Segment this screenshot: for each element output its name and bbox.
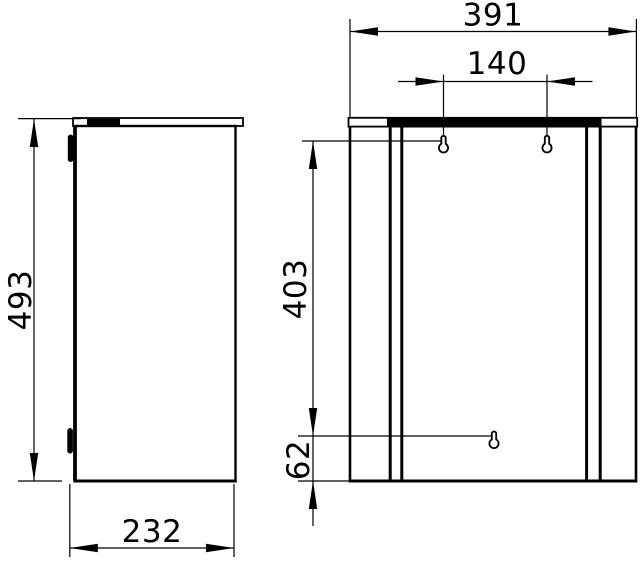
dim-height-label: 493 xyxy=(3,270,39,331)
side-view-hinge-top xyxy=(68,135,74,163)
dim-hole-spacing-label: 140 xyxy=(467,46,528,82)
arrow-right-icon xyxy=(416,77,444,85)
dim-depth: 232 xyxy=(70,484,234,557)
keyhole-top-left-icon xyxy=(439,136,448,153)
arrow-left-icon xyxy=(70,544,98,552)
arrow-down-icon xyxy=(30,453,38,481)
arrow-up-icon xyxy=(309,481,317,509)
keyhole-top-right-icon xyxy=(542,136,551,153)
dim-hole-span: 403 xyxy=(278,141,493,436)
dim-hole-span-label: 403 xyxy=(278,259,314,320)
dim-depth-label: 232 xyxy=(122,514,183,550)
arrow-right-icon xyxy=(608,27,636,35)
arrow-right-icon xyxy=(206,544,234,552)
side-view xyxy=(67,118,243,481)
arrow-up-icon xyxy=(30,119,38,147)
keyhole-bottom-icon xyxy=(489,432,498,449)
arrow-down-icon xyxy=(309,408,317,436)
front-view xyxy=(349,75,638,482)
dim-bottom-offset-label: 62 xyxy=(281,440,317,480)
front-view-lid-bar xyxy=(387,117,602,127)
dim-hole-spacing: 140 xyxy=(398,46,593,86)
arrow-left-icon xyxy=(547,77,575,85)
technical-drawing-canvas: 493 232 391 140 xyxy=(0,0,640,564)
side-view-hinge-bottom xyxy=(67,428,73,454)
mounting-holes xyxy=(439,136,552,448)
drawing-page: 493 232 391 140 xyxy=(0,0,640,564)
arrow-up-icon xyxy=(309,141,317,169)
arrow-left-icon xyxy=(350,27,378,35)
dim-height: 493 xyxy=(3,119,81,481)
dim-bottom-offset: 62 xyxy=(281,436,352,526)
dim-width-label: 391 xyxy=(463,0,524,34)
side-view-body xyxy=(75,126,236,481)
